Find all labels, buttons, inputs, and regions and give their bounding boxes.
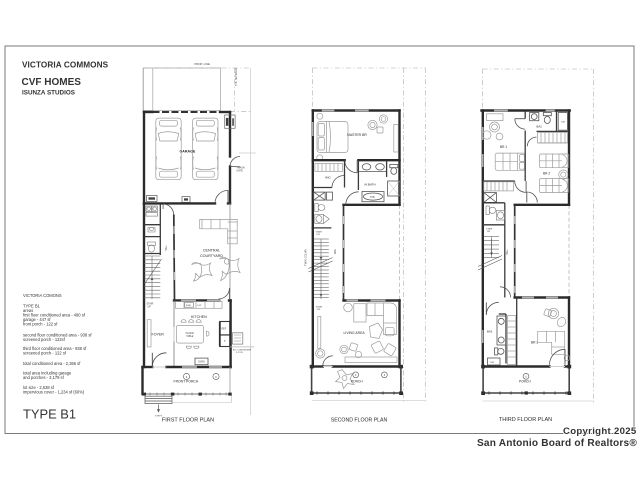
svg-text:TUB: TUB [370, 197, 375, 199]
svg-text:FIRST FLOOR PLAN: FIRST FLOOR PLAN [162, 418, 214, 424]
svg-text:BR 2: BR 2 [543, 172, 550, 176]
svg-text:M.BATH: M.BATH [365, 183, 376, 187]
svg-text:COURTYARD: COURTYARD [200, 254, 223, 258]
svg-text:TUB: TUB [490, 362, 495, 364]
svg-text:impervious cover - 1,234 sf (: impervious cover - 1,234 sf (60%) [23, 390, 85, 395]
svg-text:VICTORIA COMONS: VICTORIA COMONS [23, 293, 62, 298]
svg-text:screened porch - 122sf: screened porch - 122sf [23, 337, 66, 342]
svg-text:BA3: BA3 [487, 330, 493, 334]
svg-text:OVEN: OVEN [198, 361, 205, 364]
svg-text:VICTORIA COMMONS: VICTORIA COMMONS [22, 61, 109, 70]
svg-text:THIRD FLOOR PLAN: THIRD FLOOR PLAN [499, 417, 552, 423]
svg-text:DN: DN [317, 309, 321, 311]
svg-text:ISLAND: ISLAND [186, 332, 195, 335]
svg-text:HALL: HALL [165, 244, 168, 251]
svg-text:RAIL: RAIL [334, 248, 337, 254]
svg-text:KITCHEN: KITCHEN [191, 315, 207, 319]
svg-text:UP: UP [148, 305, 152, 308]
svg-text:TABLE: TABLE [186, 335, 194, 338]
svg-text:ISUNZA STUDIOS: ISUNZA STUDIOS [22, 90, 75, 97]
svg-text:PORCH: PORCH [351, 380, 363, 384]
svg-text:DN: DN [487, 231, 491, 233]
svg-text:TWIN COLMN: TWIN COLMN [304, 249, 308, 266]
svg-text:TYPE B1: TYPE B1 [23, 407, 76, 422]
svg-text:PORCH: PORCH [519, 380, 531, 384]
svg-text:MASTER BR: MASTER BR [347, 133, 367, 137]
svg-text:LIVING AREA: LIVING AREA [344, 331, 366, 335]
svg-text:STAIR: STAIR [486, 228, 493, 231]
svg-text:SINK: SINK [186, 305, 192, 307]
svg-text:BR 1: BR 1 [500, 145, 507, 149]
svg-text:CENTRAL: CENTRAL [203, 249, 220, 253]
svg-text:front porch - 122 sf: front porch - 122 sf [23, 322, 58, 327]
svg-text:HALL: HALL [506, 248, 509, 255]
svg-text:DN: DN [317, 234, 321, 236]
svg-text:WIC: WIC [325, 176, 332, 180]
svg-text:5' B. SETBACK: 5' B. SETBACK [234, 68, 238, 86]
svg-text:FOYER: FOYER [152, 333, 165, 337]
svg-text:and porches - 3,179 sf: and porches - 3,179 sf [23, 375, 65, 380]
svg-text:FRONT PORCH: FRONT PORCH [174, 380, 199, 384]
svg-text:San Antonio Board of Realtors®: San Antonio Board of Realtors® [477, 438, 637, 449]
svg-text:REF: REF [222, 328, 227, 330]
svg-text:screened porch - 122 sf: screened porch - 122 sf [23, 351, 67, 356]
svg-text:BA2: BA2 [537, 125, 543, 129]
svg-text:GARAGE: GARAGE [180, 150, 196, 154]
svg-text:STAIR: STAIR [316, 306, 323, 309]
svg-text:STAIR: STAIR [316, 231, 323, 234]
svg-text:3-TON: 3-TON [236, 352, 243, 354]
svg-text:PROP. LINE: PROP. LINE [195, 62, 210, 66]
svg-text:BR 3: BR 3 [531, 341, 538, 345]
svg-text:A/C CONDENSER: A/C CONDENSER [233, 349, 252, 352]
svg-text:CVF HOMES: CVF HOMES [22, 77, 82, 88]
svg-text:SECOND FLOOR PLAN: SECOND FLOOR PLAN [331, 418, 388, 424]
svg-text:total conditioned area - 2,366: total conditioned area - 2,366 sf [23, 361, 81, 366]
svg-text:Copyright 2025: Copyright 2025 [563, 426, 637, 437]
svg-text:TUB: TUB [561, 122, 566, 124]
svg-text:GATE: GATE [237, 169, 244, 172]
